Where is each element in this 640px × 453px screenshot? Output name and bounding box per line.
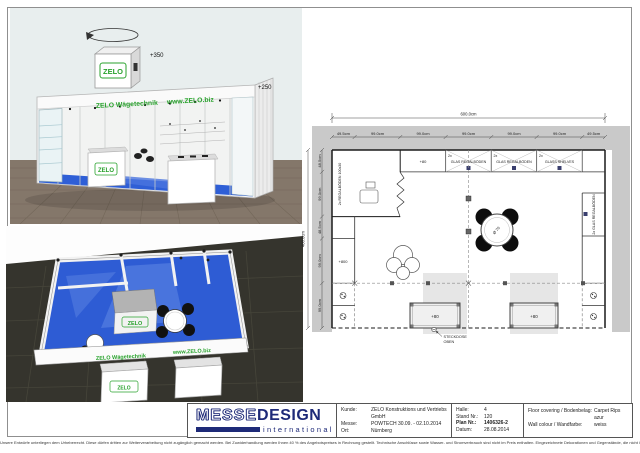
counter-left-label: +80 (431, 314, 439, 319)
fair-value: POWTECH 30.09. - 02.10.2014 (371, 421, 447, 428)
box-logo-text: ZELO (128, 321, 143, 327)
date-value: 28.08.2014 (484, 427, 519, 434)
wall-colour-label: Wall colour / Wandfarbe: (528, 422, 594, 429)
svg-text:GLASS SHELVES: GLASS SHELVES (545, 160, 575, 164)
hall-fields: Halle:4 Stand Nr.:120 Plan Nr.:1406326-2… (452, 404, 524, 437)
svg-text:99.0cm: 99.0cm (371, 131, 385, 136)
svg-text:99.0cm: 99.0cm (317, 254, 322, 268)
counter-right-label: +80 (530, 314, 538, 319)
svg-text:99.0cm: 99.0cm (416, 131, 430, 136)
perspective-render: ZELO ZELO +350 +250 ZELO Wägetechnik www… (10, 8, 302, 224)
svg-text:49.5cm: 49.5cm (337, 131, 351, 136)
socket-label-line1: STECKDOSE (444, 335, 468, 339)
city-label: Ort: (341, 428, 371, 435)
svg-text:2x: 2x (448, 154, 452, 158)
finish-fields: Floor covering / Bodenbelag:Carpet Rips … (524, 404, 632, 437)
dim-top-labels: 49.5cm 99.0cm 99.0cm 99.0cm 99.0cm 99.0c… (337, 131, 601, 136)
counter2-logo-text: ZELO (117, 386, 130, 392)
info-counter-left: ZELO (88, 147, 128, 187)
storage-shelves-label: 2x REGALBÖDEN 100x30 (338, 163, 342, 206)
info-counter-right (168, 154, 218, 204)
fair-label: Messe: (341, 421, 371, 428)
city-value: Nürnberg (371, 428, 447, 435)
svg-text:2x: 2x (539, 154, 543, 158)
counter-logo-text: ZELO (98, 168, 114, 174)
topdown-render: ZELO ZELO Wägetechnik www.ZELO.biz ZELO (6, 226, 303, 402)
floor-covering2-label (528, 415, 594, 422)
floor-covering-value: Carpet Rips (594, 408, 628, 415)
svg-text:49.5cm: 49.5cm (587, 131, 601, 136)
svg-text:99.0cm: 99.0cm (317, 298, 322, 312)
disclaimer: Unsere Entwürfe unterliegen dem Urheberr… (0, 440, 640, 445)
glass-display-left (39, 109, 62, 183)
svg-text:48.5cm: 48.5cm (317, 154, 322, 168)
band-right (612, 126, 630, 332)
plan-counter-right: +80 (510, 303, 558, 328)
client-value: ZELO Konstruktions und Vertriebs GmbH (371, 407, 447, 421)
floor-covering-label: Floor covering / Bodenbelag: (528, 408, 594, 415)
logo-part-design: DESIGN (257, 408, 321, 424)
cube-side-mark (134, 63, 138, 71)
svg-text:2x: 2x (494, 154, 498, 158)
front-counter-left: ZELO (100, 361, 148, 402)
client-fields: Kunde:ZELO Konstruktions und Vertriebs G… (337, 404, 452, 437)
svg-text:99.0cm: 99.0cm (553, 131, 567, 136)
cube-logo-text: ZELO (103, 67, 123, 76)
hanging-cube-sign: ZELO (95, 47, 140, 88)
svg-text:99.0cm: 99.0cm (507, 131, 521, 136)
logo-part-messe: MESSE (196, 408, 257, 424)
storage-cube: ZELO (112, 289, 157, 334)
back-counter-label: +80 (420, 159, 428, 164)
company-logo: MESSEDESIGN international (188, 404, 337, 437)
wall-height-label: +250 (258, 85, 272, 91)
hanging-height-label: +350 (150, 53, 164, 59)
dim-overall-depth (306, 148, 310, 330)
wall-colour-value: weiss (594, 422, 628, 429)
plan-meeting-table: Ø 70 (476, 209, 519, 252)
right-shelves-label: 2x GLAS REGALBÖDEN (592, 194, 596, 235)
title-block: MESSEDESIGN international Kunde:ZELO Kon… (187, 403, 633, 438)
dim-overall-width-label: 600.0cm (460, 112, 477, 117)
socket-label-line2: OBEN (444, 340, 455, 344)
svg-text:99.0cm: 99.0cm (462, 131, 476, 136)
date-label: Datum: (456, 427, 484, 434)
band-top (312, 126, 630, 150)
logo-subtitle: international (263, 425, 334, 434)
floor-plan: 600.0cm 49.5cm 99.0cm 99.0cm 99.0cm 99.0… (300, 106, 640, 356)
front-counter-right (174, 357, 222, 398)
logo-bar (196, 427, 260, 432)
glass-display-right (232, 97, 253, 196)
booth-side-wall (255, 78, 273, 198)
floor-covering2-value: azur (594, 415, 628, 422)
svg-text:GLAS REGALBÖDEN: GLAS REGALBÖDEN (496, 160, 532, 164)
wall-height-plan-label: +800 (338, 259, 348, 264)
client-label: Kunde: (341, 407, 371, 421)
plan-counter-left: +80 (410, 303, 460, 328)
dim-overall-depth-label: 400.0cm (301, 230, 306, 247)
svg-text:48.5cm: 48.5cm (317, 220, 322, 234)
svg-text:99.0cm: 99.0cm (317, 187, 322, 201)
